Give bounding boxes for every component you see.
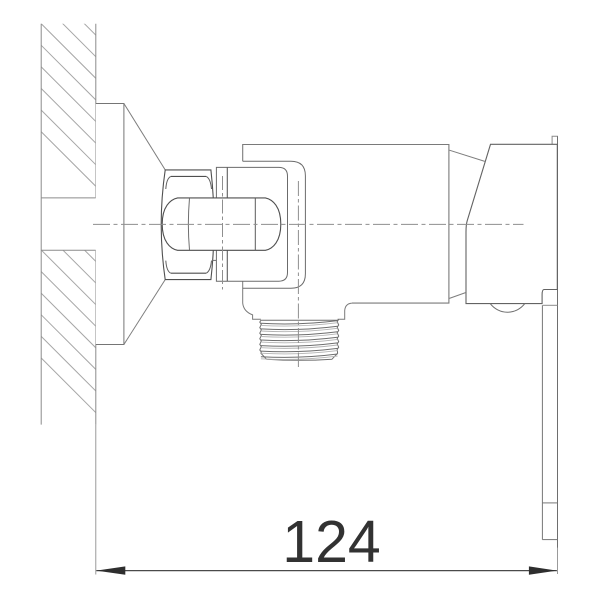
svg-text:124: 124 (282, 509, 380, 575)
